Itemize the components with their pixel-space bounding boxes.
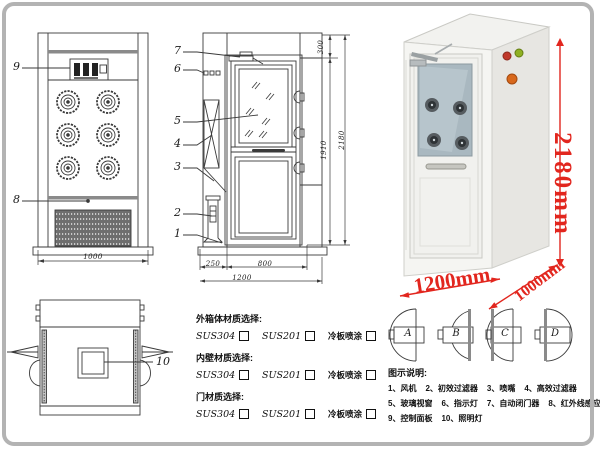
material-checkbox[interactable] [305, 331, 315, 341]
material-option: 冷板喷涂 [328, 408, 362, 420]
air-shower-spec-sheet: 9 8 1000 7 6 5 4 3 2 1 300 1910 2180 250… [0, 0, 600, 450]
legend-item: 6、指示灯 [441, 398, 477, 409]
material-checkbox[interactable] [239, 370, 249, 380]
filter-box-symbol [204, 100, 226, 192]
ceiling-light-symbol [78, 348, 108, 378]
legend-item: 5、玻璃视窗 [388, 398, 432, 409]
door-option-b-label: B [450, 328, 462, 339]
plan-view-drawing [7, 300, 173, 415]
material-checkbox[interactable] [239, 331, 249, 341]
nozzles-side-symbols [294, 91, 304, 174]
callout-5: 5 [174, 114, 181, 127]
material-group-label: 外箱体材质选择: [196, 312, 376, 325]
material-options-row: SUS304 SUS201 冷板喷涂 [196, 330, 376, 342]
left-handle-symbol [30, 360, 41, 386]
material-checkbox[interactable] [305, 409, 315, 419]
dim-2180: 2180 [338, 124, 346, 156]
material-checkbox[interactable] [366, 331, 376, 341]
dim-250: 250 [202, 260, 224, 268]
control-panel [70, 59, 108, 80]
dim-800: 800 [252, 260, 278, 268]
door-option-c-label: C [499, 328, 511, 339]
dim-1200: 1200 [228, 274, 256, 282]
door-closer-symbol [229, 52, 263, 64]
photo-button [507, 74, 517, 84]
callout-2: 2 [174, 206, 181, 219]
material-option: SUS304 [196, 370, 235, 381]
legend-item: 8、红外线感应器 [548, 398, 600, 409]
glass-hatch-marks [245, 82, 274, 138]
material-group-label: 内壁材质选择: [196, 351, 376, 364]
top-divider-bar [48, 50, 138, 54]
callout-10: 10 [156, 355, 170, 368]
door-option-d-label: D [549, 328, 561, 339]
front-width-dim-label: 1000 [78, 253, 108, 261]
material-options-row: SUS304 SUS201 冷板喷涂 [196, 408, 376, 420]
callout-3: 3 [174, 160, 181, 173]
legend-row: 9、控制面板 10、照明灯 [388, 413, 592, 424]
door-option-tiles [389, 309, 572, 361]
door-drawing [225, 55, 302, 245]
photo-red-light [503, 52, 511, 60]
callout-6: 6 [174, 62, 181, 75]
dim-1910: 1910 [320, 134, 328, 166]
material-checkbox[interactable] [366, 370, 376, 380]
photo-green-light [515, 49, 523, 57]
legend-row: 5、玻璃视窗 6、指示灯 7、自动闭门器 8、红外线感应器 [388, 398, 592, 409]
product-photo [404, 14, 549, 276]
blower-column-symbol [204, 196, 222, 242]
legend-title: 图示说明: [388, 366, 592, 379]
material-option: 冷板喷涂 [328, 369, 362, 381]
photo-height-label: 2180mm [548, 109, 576, 259]
material-checkbox[interactable] [305, 370, 315, 380]
return-grille [55, 210, 131, 246]
nozzles-front [57, 91, 119, 179]
photo-door-handle [426, 164, 466, 169]
material-option: SUS201 [262, 370, 301, 381]
door-handle-symbol [252, 149, 285, 152]
right-handle-symbol [140, 360, 151, 386]
legend-item: 10、照明灯 [441, 413, 482, 424]
door-option-a-label: A [402, 328, 414, 339]
legend-item: 7、自动闭门器 [487, 398, 539, 409]
legend-block: 图示说明: 1、风机 2、初效过滤器 3、喷嘴 4、高效过滤器 5、玻璃视窗 6… [388, 366, 592, 428]
indicator-lights-symbol [204, 71, 220, 75]
callout-7: 7 [174, 44, 181, 57]
front-view-drawing [22, 33, 153, 265]
material-option: SUS201 [262, 409, 301, 420]
callout-8: 8 [13, 193, 20, 206]
legend-row: 1、风机 2、初效过滤器 3、喷嘴 4、高效过滤器 [388, 383, 592, 394]
photo-door [410, 54, 482, 258]
callout-1: 1 [174, 227, 181, 240]
callout-4: 4 [174, 137, 181, 150]
material-selection-block: 外箱体材质选择: SUS304 SUS201 冷板喷涂 内壁材质选择: SUS3… [196, 312, 376, 429]
dim-300: 300 [317, 36, 325, 58]
bottom-divider-bar [48, 196, 138, 200]
side-view-leaders [183, 52, 258, 243]
material-option: 冷板喷涂 [328, 330, 362, 342]
material-group-label: 门材质选择: [196, 390, 376, 403]
legend-item: 3、喷嘴 [487, 383, 515, 394]
material-checkbox[interactable] [239, 409, 249, 419]
legend-item: 2、初效过滤器 [425, 383, 477, 394]
legend-item: 1、风机 [388, 383, 416, 394]
material-options-row: SUS304 SUS201 冷板喷涂 [196, 369, 376, 381]
material-option: SUS201 [262, 331, 301, 342]
material-checkbox[interactable] [366, 409, 376, 419]
callout-9: 9 [13, 60, 20, 73]
material-option: SUS304 [196, 331, 235, 342]
legend-item: 4、高效过滤器 [524, 383, 576, 394]
material-option: SUS304 [196, 409, 235, 420]
legend-item: 9、控制面板 [388, 413, 432, 424]
